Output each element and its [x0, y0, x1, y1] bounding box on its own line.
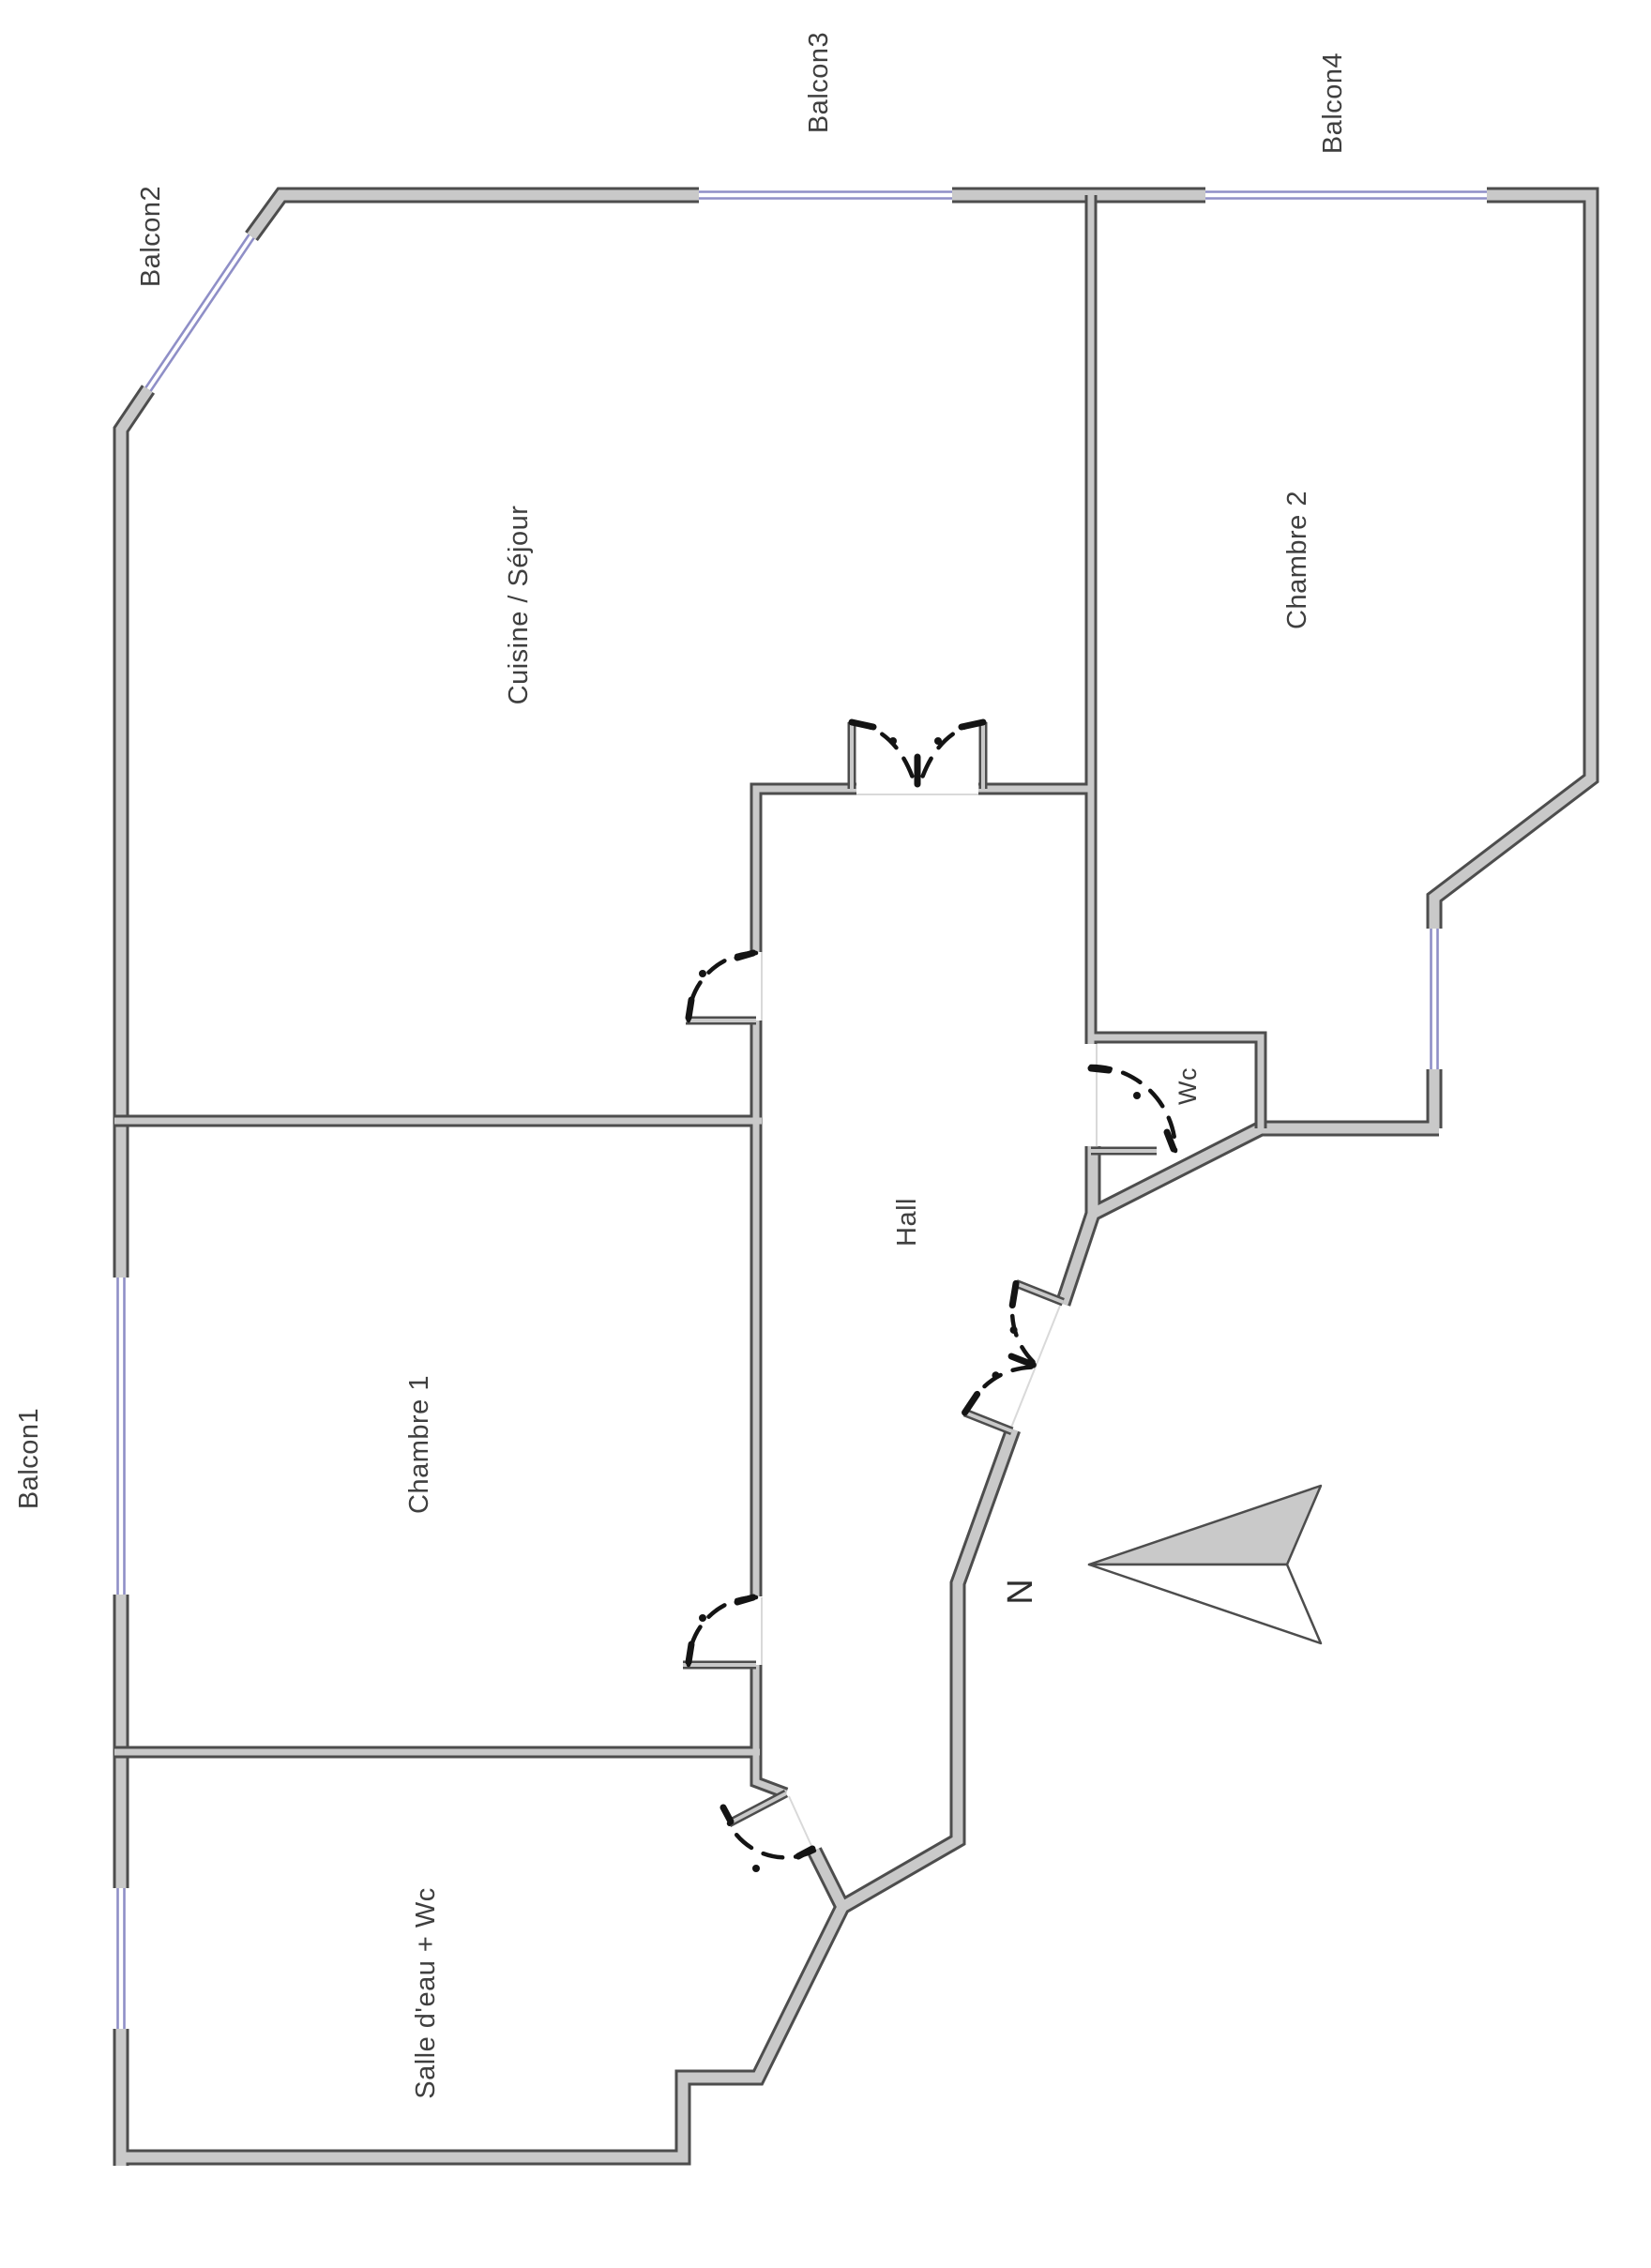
double-door-cuisine-hall	[852, 722, 983, 789]
door-dot	[752, 1865, 760, 1872]
door-swing-arc	[689, 953, 756, 1021]
exterior-wall-fill	[121, 195, 1591, 2166]
exterior-wall-outline	[121, 195, 1591, 2166]
labels: Cuisine / Séjour Chambre 1 Chambre 2 Hal…	[14, 32, 1348, 2099]
room-label-salle-deau: Salle d'eau + Wc	[411, 1887, 441, 2099]
door-swing-arc	[920, 722, 983, 783]
interior-wall-fill	[114, 195, 1261, 1793]
window-balcon4	[1205, 192, 1487, 199]
door-dot	[1133, 1092, 1141, 1099]
room-label-hall: Hall	[892, 1198, 922, 1247]
door-swing-arc	[852, 722, 915, 783]
door-thresholds	[762, 794, 1097, 1848]
door-wc	[1091, 1066, 1175, 1151]
balcony-label-balcon2: Balcon2	[136, 186, 166, 287]
door-chambre1	[689, 1597, 756, 1665]
window-chambre2	[1431, 929, 1438, 1069]
door-dot	[934, 737, 942, 745]
door-dot	[699, 1614, 706, 1622]
north-arrow-upper-half	[1089, 1486, 1321, 1565]
room-label-cuisine-sejour: Cuisine / Séjour	[504, 506, 534, 705]
interior-walls	[114, 195, 1261, 1793]
north-arrow: N	[1001, 1486, 1321, 1643]
door-swing-arc	[689, 1597, 756, 1665]
room-label-chambre1: Chambre 1	[404, 1375, 434, 1514]
floor-plan: N Cuisine / Séjour Chambre 1 Chambre 2 H…	[0, 0, 1651, 2268]
room-label-chambre2: Chambre 2	[1282, 491, 1312, 629]
room-label-wc: Wc	[1174, 1067, 1202, 1105]
door-dot	[889, 737, 897, 745]
exterior-walls	[121, 195, 1591, 2166]
balcony-label-balcon4: Balcon4	[1318, 53, 1348, 154]
door-swing-arc	[1091, 1066, 1175, 1151]
window-salle-deau	[118, 1888, 125, 2029]
double-door-entrance	[965, 1283, 1064, 1430]
window-balcon1-chambre1	[118, 1278, 125, 1595]
door-cuisine	[689, 953, 756, 1021]
balcony-label-balcon3: Balcon3	[804, 32, 834, 133]
window-balcon3	[699, 192, 952, 199]
north-label: N	[1001, 1579, 1040, 1604]
balcony-label-balcon1: Balcon1	[14, 1408, 44, 1509]
threshold-line	[789, 1796, 812, 1848]
door-dot	[699, 970, 706, 977]
north-arrow-lower-half	[1089, 1565, 1321, 1643]
